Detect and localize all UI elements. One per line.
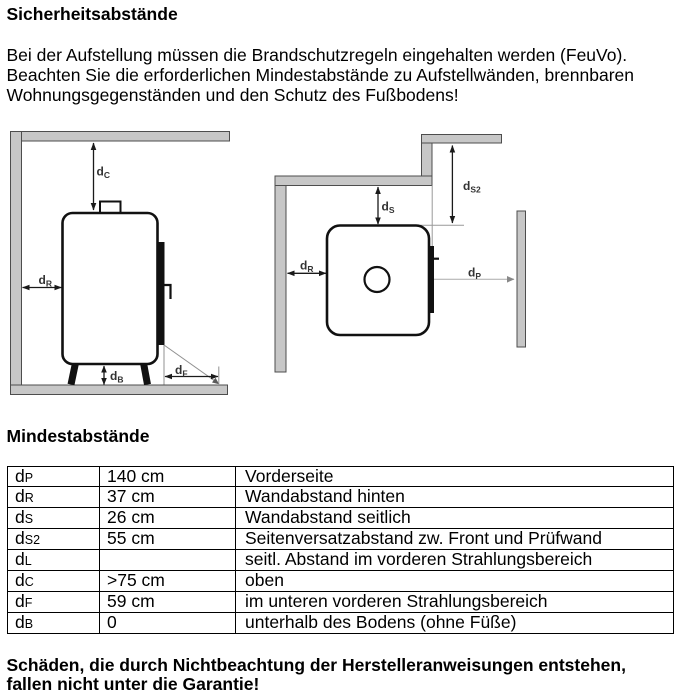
svg-text:dB: dB bbox=[110, 369, 123, 385]
svg-text:dC: dC bbox=[97, 165, 110, 181]
svg-text:dF: dF bbox=[175, 363, 188, 379]
svg-text:dR: dR bbox=[300, 259, 313, 275]
svg-text:dR: dR bbox=[39, 273, 52, 289]
svg-text:dS2: dS2 bbox=[463, 179, 481, 195]
svg-text:dP: dP bbox=[468, 266, 481, 282]
svg-text:dS: dS bbox=[382, 200, 395, 216]
